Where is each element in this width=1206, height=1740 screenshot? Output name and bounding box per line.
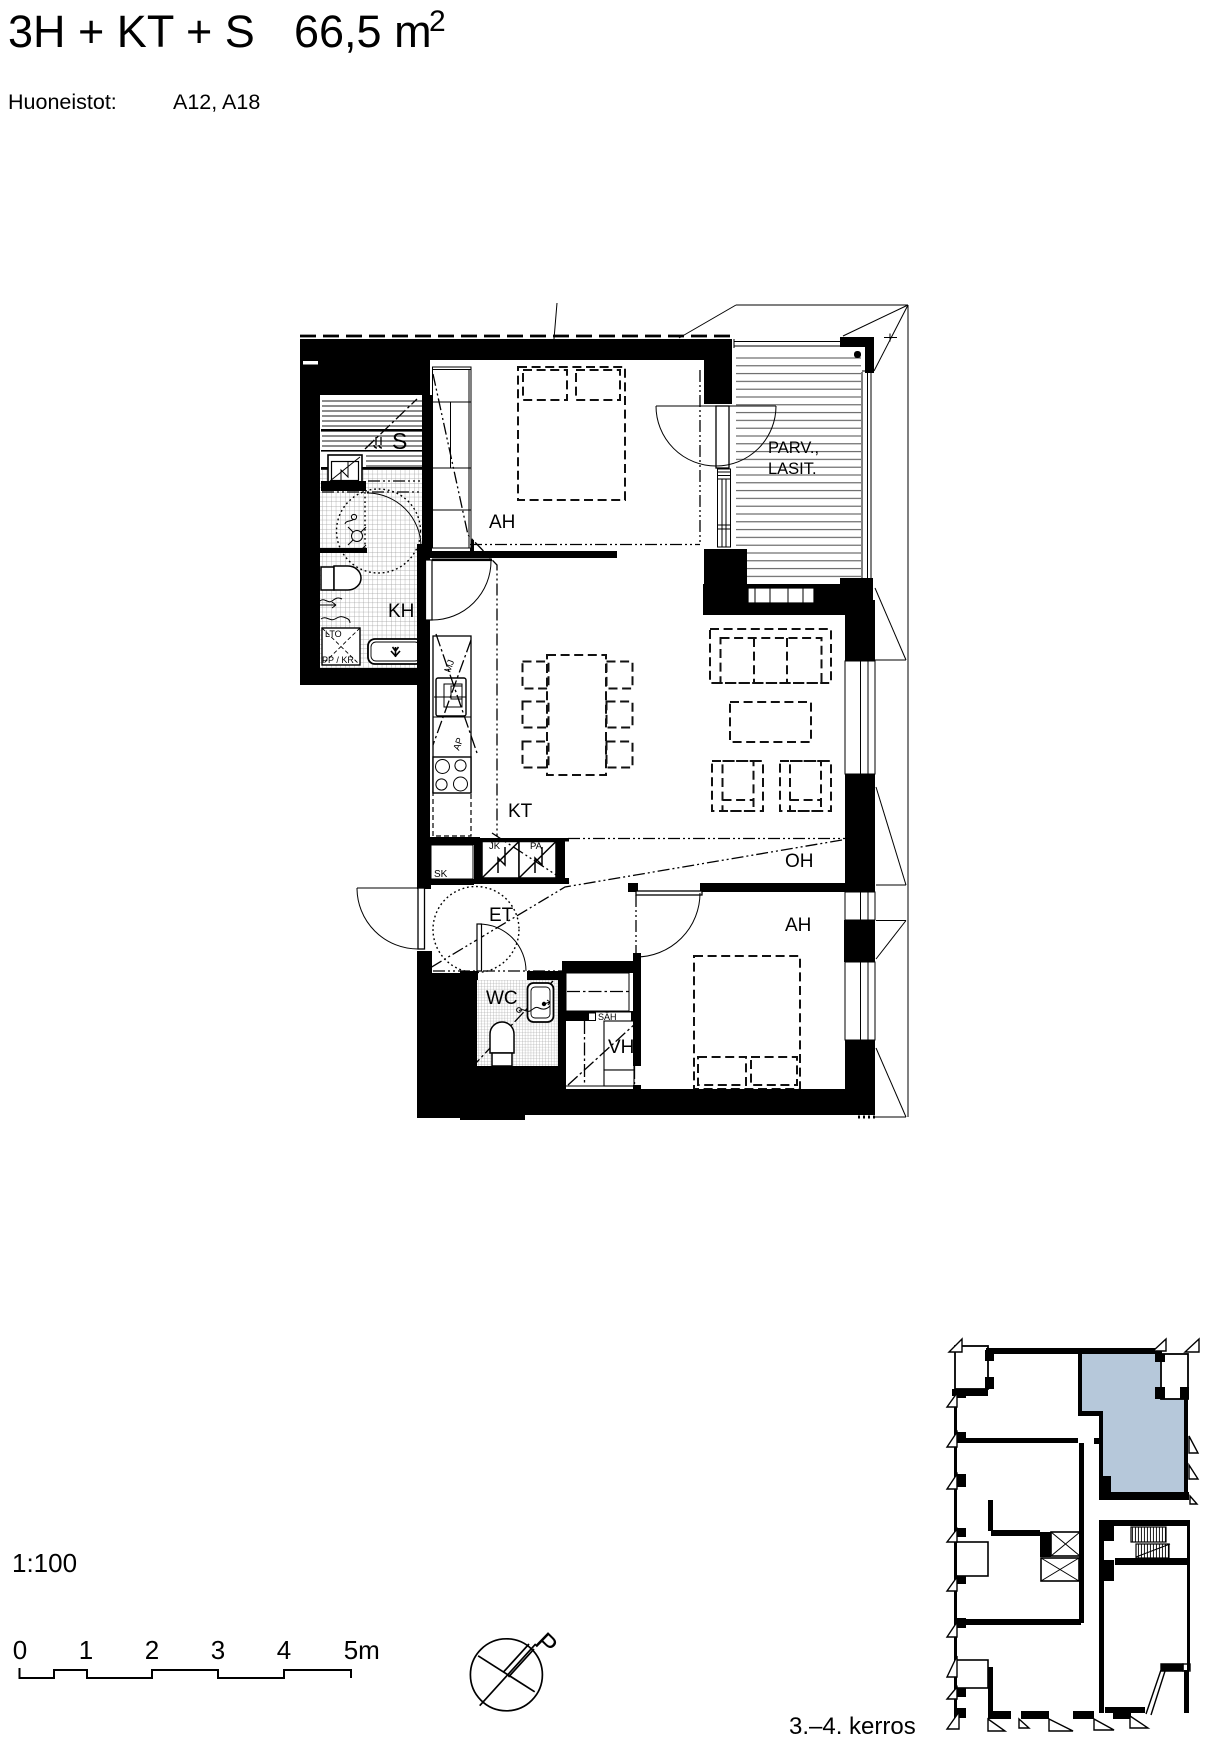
svg-text:VH: VH	[608, 1037, 634, 1058]
svg-text:KT: KT	[508, 801, 533, 822]
svg-text:Huoneistot:: Huoneistot:	[8, 90, 117, 114]
svg-text:ET: ET	[489, 905, 514, 926]
svg-text:LTO: LTO	[325, 629, 342, 639]
svg-text:3.–4. kerros: 3.–4. kerros	[789, 1713, 916, 1740]
svg-text:5: 5	[344, 1635, 358, 1665]
svg-text:JK: JK	[489, 841, 501, 852]
svg-text:KH: KH	[388, 601, 414, 622]
svg-text:3H + KT + S: 3H + KT + S	[8, 6, 255, 57]
svg-text:LASIT.: LASIT.	[768, 460, 817, 478]
svg-text:AH: AH	[489, 512, 515, 533]
svg-text:PA: PA	[530, 841, 543, 852]
svg-text:SK: SK	[434, 869, 448, 880]
svg-text:2: 2	[145, 1635, 159, 1665]
svg-text:3: 3	[211, 1635, 225, 1665]
svg-text:m: m	[358, 1635, 380, 1665]
svg-text:PARV.,: PARV.,	[768, 439, 819, 457]
svg-text:0: 0	[13, 1635, 27, 1665]
svg-text:1: 1	[79, 1635, 93, 1665]
svg-text:WC: WC	[486, 988, 518, 1009]
svg-text:66,5 m: 66,5 m	[294, 6, 432, 57]
svg-text:1:100: 1:100	[12, 1548, 77, 1578]
svg-text:OH: OH	[785, 851, 814, 872]
svg-text:S: S	[392, 428, 407, 454]
svg-text:A12, A18: A12, A18	[173, 90, 260, 114]
svg-text:PP / KR: PP / KR	[322, 655, 354, 665]
svg-text:2: 2	[429, 5, 446, 38]
svg-text:4: 4	[277, 1635, 291, 1665]
svg-text:AH: AH	[785, 915, 811, 936]
